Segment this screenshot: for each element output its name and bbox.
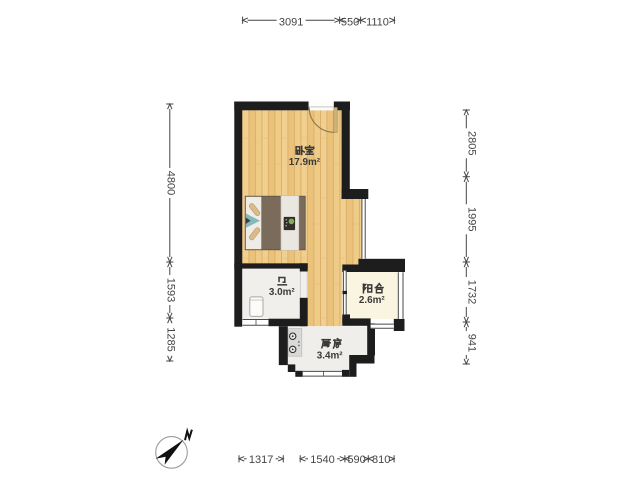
svg-text:2.6m²: 2.6m²	[359, 295, 386, 306]
svg-text:1995: 1995	[465, 207, 477, 231]
svg-text:1593: 1593	[164, 278, 176, 302]
svg-text:550: 550	[341, 17, 359, 29]
svg-text:1540: 1540	[310, 454, 334, 466]
svg-text:1317: 1317	[249, 454, 273, 466]
svg-text:2805: 2805	[465, 131, 477, 155]
svg-text:941: 941	[465, 334, 477, 352]
svg-text:17.9m²: 17.9m²	[289, 157, 321, 168]
svg-text:4800: 4800	[164, 171, 176, 195]
svg-text:3.4m²: 3.4m²	[317, 351, 344, 362]
svg-text:590: 590	[347, 454, 365, 466]
svg-text:810: 810	[372, 454, 390, 466]
svg-text:1285: 1285	[164, 327, 176, 351]
svg-text:3.0m²: 3.0m²	[269, 287, 296, 298]
svg-text:3091: 3091	[279, 17, 303, 29]
svg-text:1732: 1732	[465, 280, 477, 304]
svg-text:1110: 1110	[366, 17, 389, 29]
